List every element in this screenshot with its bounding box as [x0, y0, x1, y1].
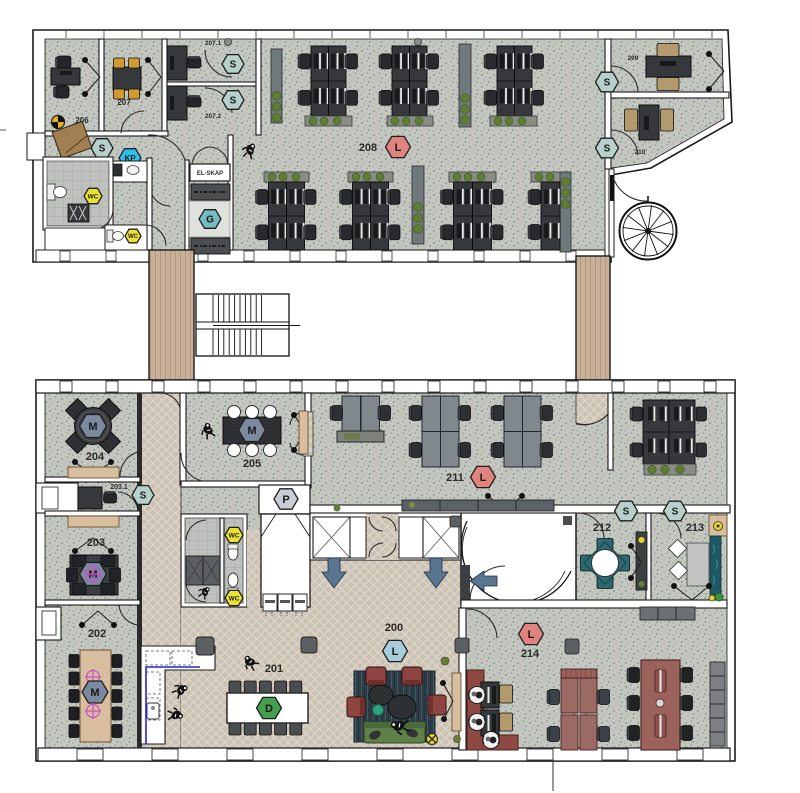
svg-text:214: 214 — [521, 648, 540, 660]
svg-text:S: S — [230, 60, 237, 71]
svg-text:M: M — [247, 425, 256, 437]
svg-text:WC: WC — [128, 234, 139, 240]
svg-text:S: S — [623, 507, 630, 518]
svg-text:L: L — [480, 472, 487, 484]
svg-text:210: 210 — [635, 149, 646, 156]
svg-text:201: 201 — [265, 663, 283, 675]
svg-text:207.1: 207.1 — [205, 40, 222, 47]
svg-text:S: S — [604, 78, 611, 89]
svg-text:212: 212 — [593, 522, 611, 534]
svg-text:M: M — [90, 687, 99, 699]
svg-text:G: G — [206, 215, 214, 226]
svg-text:WC: WC — [229, 532, 240, 539]
svg-text:204: 204 — [86, 451, 105, 463]
svg-text:S: S — [672, 507, 679, 518]
svg-text:203: 203 — [87, 537, 105, 549]
svg-text:M: M — [88, 421, 97, 433]
svg-text:L: L — [528, 629, 535, 641]
svg-text:S: S — [230, 96, 237, 107]
svg-text:207.2: 207.2 — [205, 113, 222, 120]
svg-text:213: 213 — [686, 522, 704, 534]
svg-text:200: 200 — [385, 622, 403, 634]
svg-text:EL-SKAP: EL-SKAP — [197, 171, 223, 177]
svg-text:S: S — [99, 144, 106, 155]
svg-text:S: S — [140, 491, 147, 502]
svg-text:208: 208 — [359, 142, 377, 154]
svg-text:D: D — [265, 703, 273, 715]
svg-text:202: 202 — [88, 628, 106, 640]
svg-text:205: 205 — [243, 458, 261, 470]
svg-text:207: 207 — [117, 98, 131, 107]
svg-text:WC: WC — [229, 595, 240, 602]
svg-text:S: S — [604, 144, 611, 155]
svg-text:L: L — [392, 646, 399, 658]
svg-text:203.1: 203.1 — [110, 484, 128, 491]
svg-text:L: L — [395, 142, 402, 154]
svg-text:P: P — [282, 494, 289, 506]
svg-text:211: 211 — [446, 472, 464, 484]
svg-text:209: 209 — [628, 55, 639, 62]
svg-text:WC: WC — [88, 193, 99, 200]
